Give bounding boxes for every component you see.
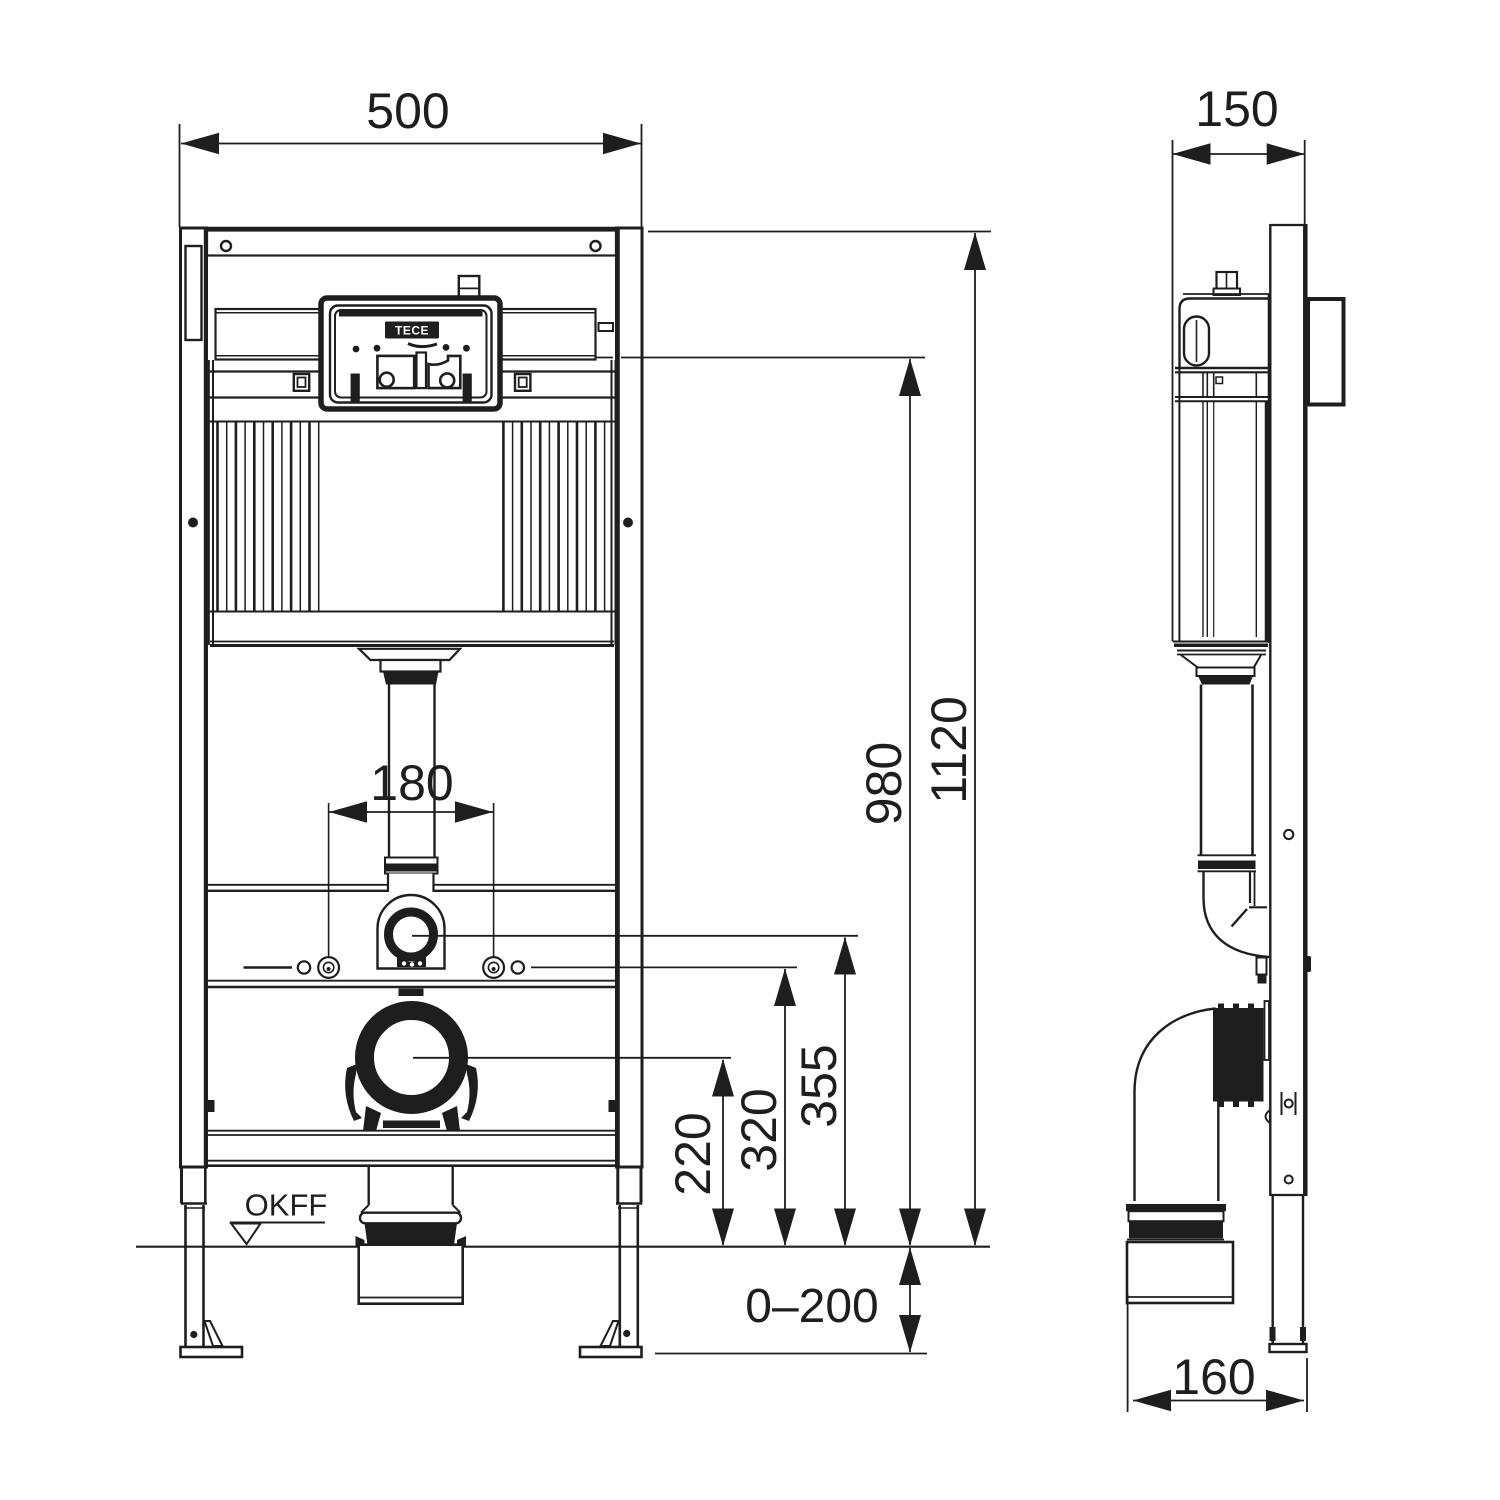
svg-text:160: 160 — [1172, 1349, 1255, 1405]
svg-text:220: 220 — [665, 1112, 721, 1195]
svg-text:180: 180 — [370, 755, 453, 811]
svg-text:500: 500 — [366, 83, 449, 139]
svg-text:OKFF: OKFF — [245, 1188, 328, 1223]
svg-text:980: 980 — [856, 742, 912, 825]
svg-text:TECE: TECE — [395, 324, 429, 338]
svg-text:355: 355 — [791, 1044, 847, 1127]
svg-text:150: 150 — [1195, 81, 1278, 137]
svg-text:0–200: 0–200 — [745, 1280, 878, 1333]
svg-text:1120: 1120 — [921, 696, 977, 804]
svg-text:320: 320 — [731, 1088, 787, 1171]
